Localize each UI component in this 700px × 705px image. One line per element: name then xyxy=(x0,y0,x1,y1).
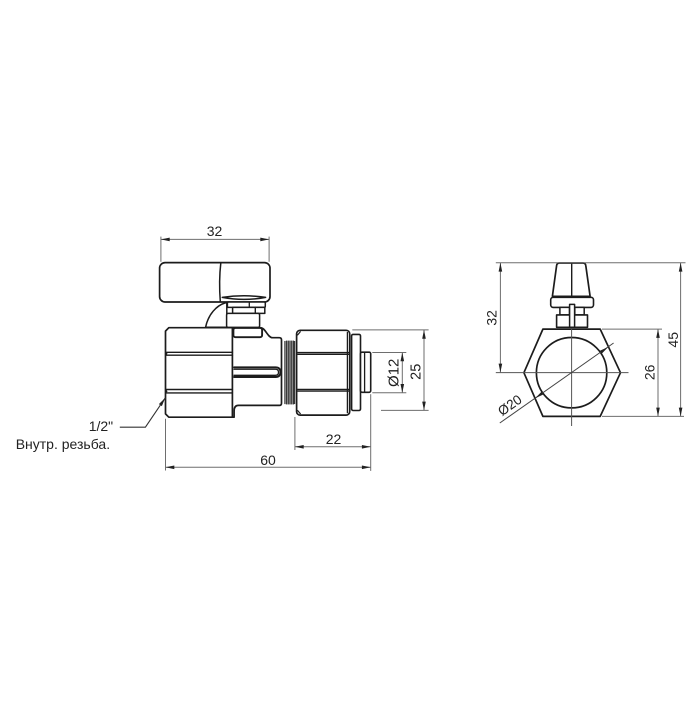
svg-text:60: 60 xyxy=(260,452,276,468)
svg-text:Внутр. резьба.: Внутр. резьба. xyxy=(16,436,110,452)
svg-text:Ø20: Ø20 xyxy=(495,392,525,419)
svg-text:32: 32 xyxy=(207,223,223,239)
svg-text:45: 45 xyxy=(665,332,681,348)
svg-text:Ø12: Ø12 xyxy=(386,359,403,387)
svg-text:22: 22 xyxy=(326,431,342,447)
svg-text:32: 32 xyxy=(483,310,499,326)
svg-text:26: 26 xyxy=(641,364,657,380)
svg-text:1/2": 1/2" xyxy=(89,418,113,434)
svg-text:25: 25 xyxy=(408,364,424,380)
